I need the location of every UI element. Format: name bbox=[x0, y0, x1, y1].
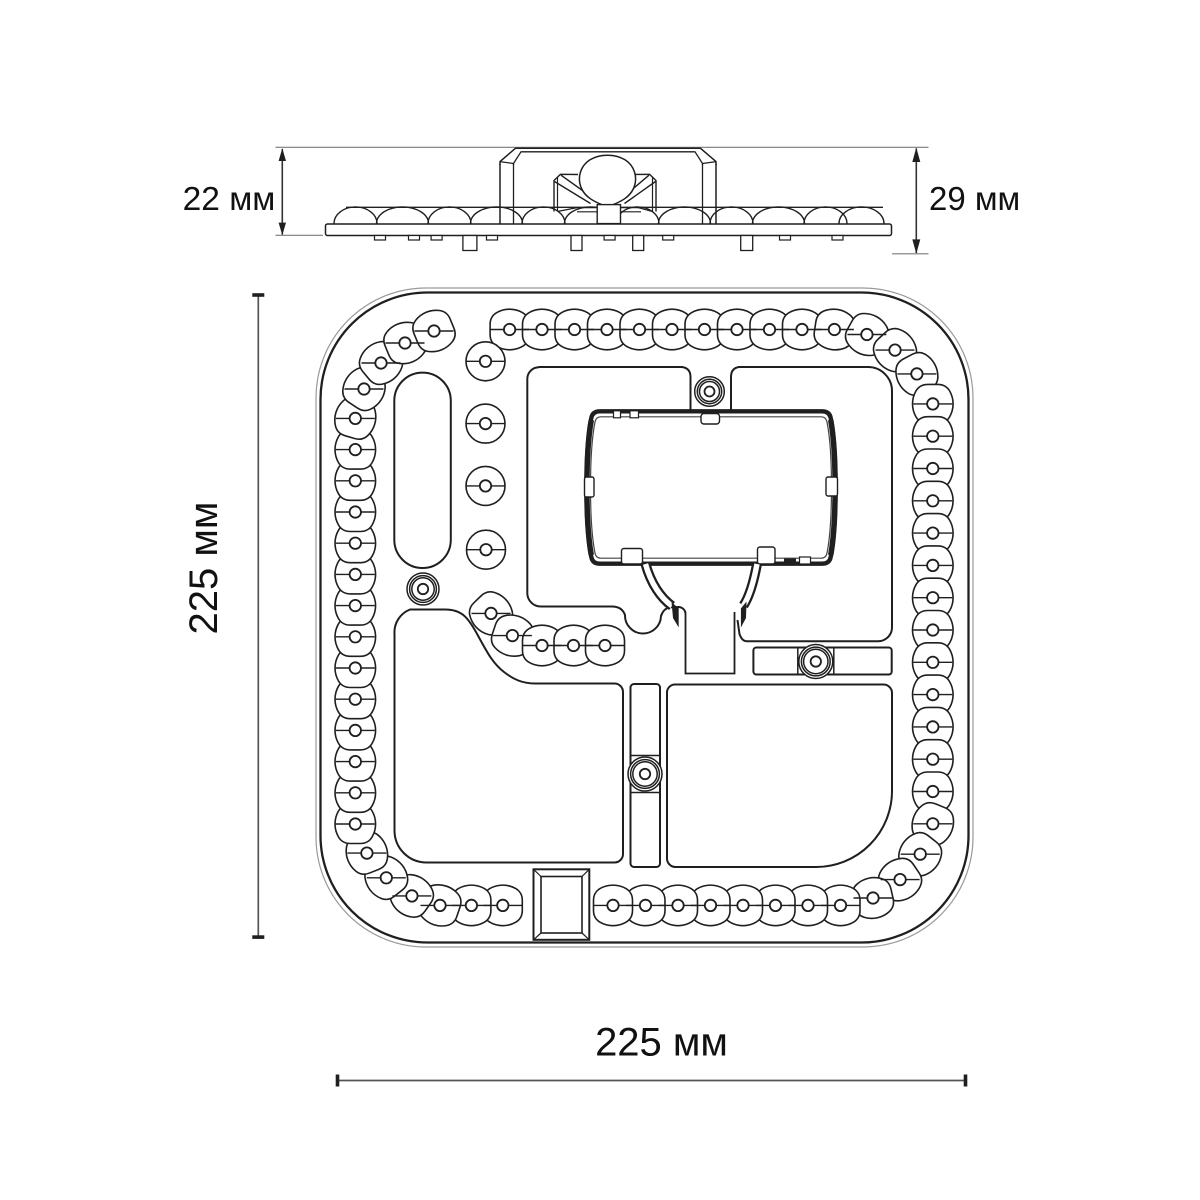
svg-text:22 мм: 22 мм bbox=[183, 181, 276, 218]
svg-text:29 мм: 29 мм bbox=[929, 180, 1020, 217]
svg-text:225 мм: 225 мм bbox=[595, 1020, 728, 1064]
svg-text:225 мм: 225 мм bbox=[182, 502, 226, 635]
